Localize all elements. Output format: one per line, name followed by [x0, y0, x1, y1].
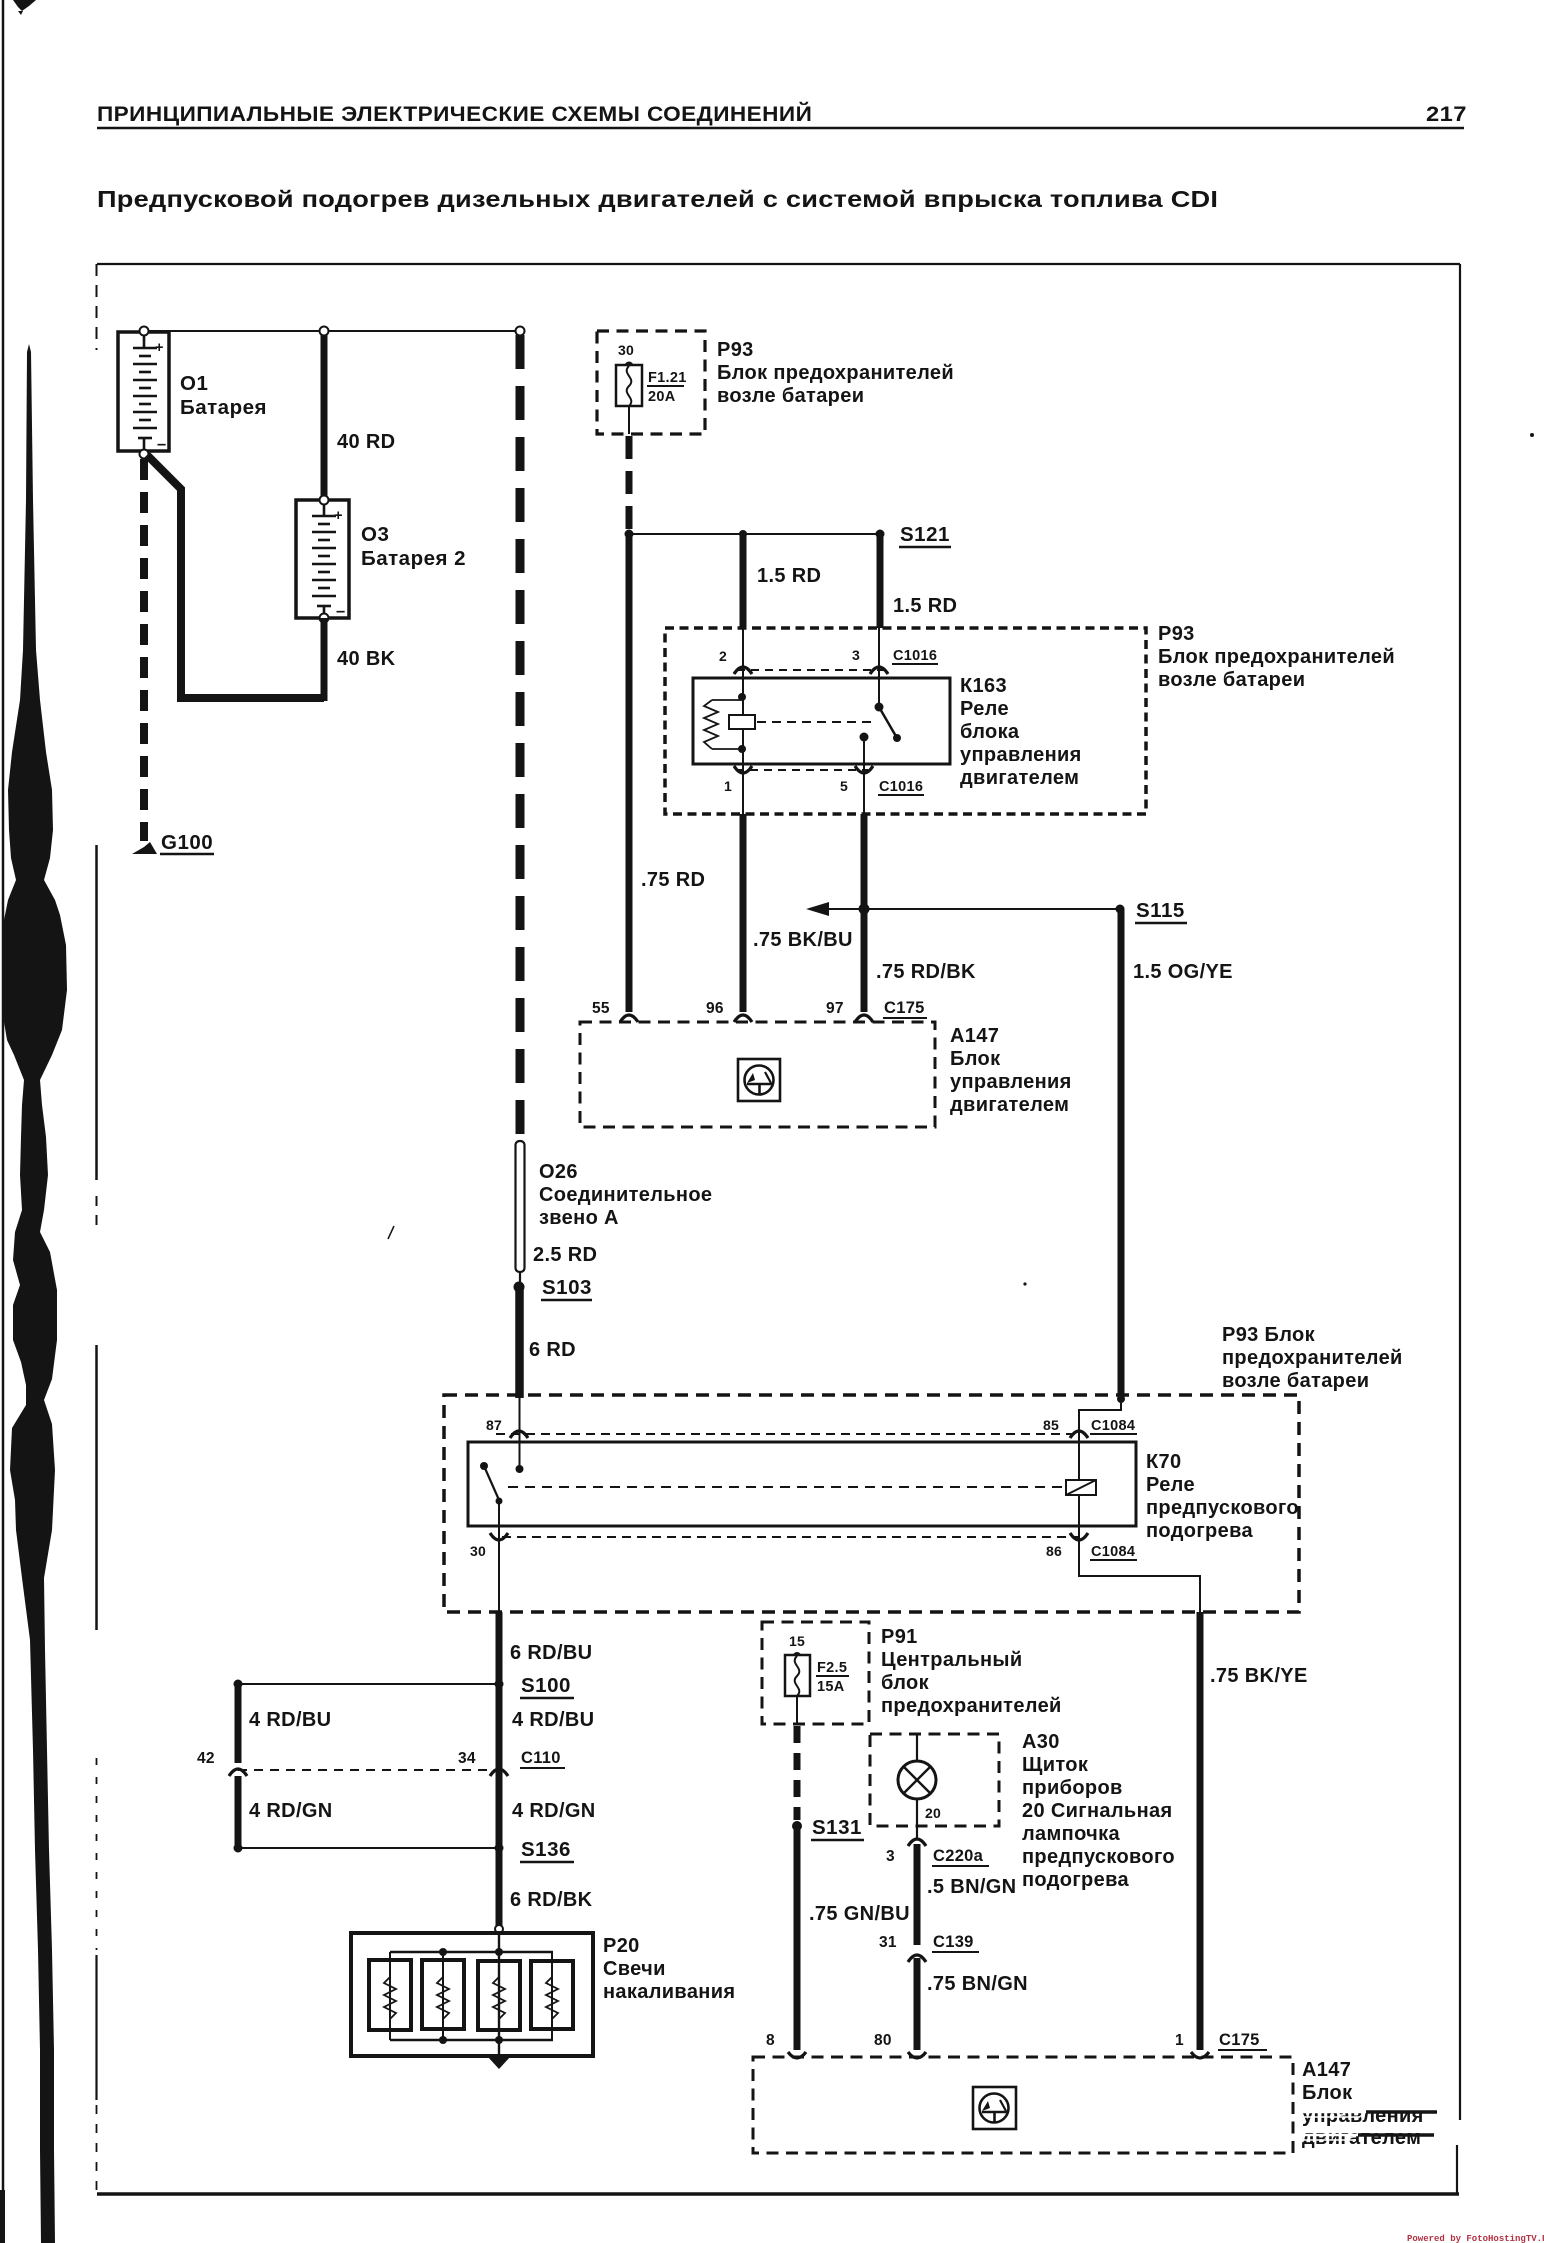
- svg-text:1.5 OG/YE: 1.5 OG/YE: [1133, 961, 1233, 983]
- svg-text:4 RD/GN: 4 RD/GN: [249, 1800, 333, 1822]
- svg-text:40 BK: 40 BK: [337, 648, 396, 670]
- svg-text:4 RD/GN: 4 RD/GN: [512, 1800, 596, 1822]
- svg-text:30: 30: [470, 1543, 486, 1559]
- svg-text:6 RD/BU: 6 RD/BU: [510, 1642, 592, 1664]
- svg-text:звено А: звено А: [539, 1207, 619, 1229]
- svg-text:C175: C175: [1219, 2031, 1260, 2049]
- svg-text:C1016: C1016: [879, 779, 923, 795]
- svg-text:Щиток: Щиток: [1022, 1754, 1089, 1776]
- svg-text:Р93 Блок: Р93 Блок: [1222, 1324, 1316, 1346]
- svg-text:.75 GN/BU: .75 GN/BU: [809, 1903, 910, 1925]
- svg-text:+: +: [155, 340, 164, 356]
- svg-text:15: 15: [789, 1633, 805, 1649]
- svg-text:подогрева: подогрева: [1022, 1869, 1129, 1891]
- svg-text:Центральный: Центральный: [881, 1649, 1023, 1671]
- svg-text:предохранителей: предохранителей: [881, 1695, 1062, 1717]
- svg-text:Реле: Реле: [1146, 1474, 1195, 1496]
- svg-text:Р20: Р20: [603, 1935, 640, 1957]
- svg-text:предпускового: предпускового: [1146, 1497, 1299, 1519]
- svg-text:.75 RD/BK: .75 RD/BK: [876, 961, 976, 983]
- svg-text:C1084: C1084: [1091, 1418, 1135, 1434]
- svg-text:А147: А147: [950, 1025, 999, 1047]
- svg-text:5: 5: [840, 778, 848, 794]
- svg-text:Блок: Блок: [950, 1048, 1001, 1070]
- svg-text:.5 BN/GN: .5 BN/GN: [927, 1876, 1016, 1898]
- svg-text:F1.21: F1.21: [648, 370, 687, 386]
- svg-text:О3: О3: [361, 523, 389, 546]
- svg-text:S103: S103: [542, 1276, 592, 1299]
- svg-text:1.5 RD: 1.5 RD: [757, 565, 821, 587]
- svg-text:блок: блок: [881, 1672, 930, 1694]
- svg-text:возле батареи: возле батареи: [1222, 1370, 1369, 1392]
- svg-text:1: 1: [1175, 2032, 1184, 2049]
- svg-text:34: 34: [458, 1750, 476, 1767]
- svg-text:C220a: C220a: [933, 1847, 984, 1865]
- svg-text:20A: 20A: [648, 389, 676, 405]
- svg-text:6 RD/BK: 6 RD/BK: [510, 1889, 593, 1911]
- svg-text:–: –: [336, 602, 345, 620]
- svg-text:C175: C175: [884, 999, 925, 1017]
- svg-text:.75 BK/YE: .75 BK/YE: [1210, 1665, 1308, 1687]
- svg-text:S115: S115: [1136, 899, 1185, 922]
- svg-text:3: 3: [886, 1848, 895, 1865]
- svg-text:1: 1: [724, 778, 732, 794]
- svg-text:31: 31: [879, 1934, 897, 1951]
- svg-text:217: 217: [1426, 102, 1467, 125]
- svg-text:86: 86: [1046, 1543, 1062, 1559]
- svg-text:Р93: Р93: [717, 339, 754, 361]
- svg-text:4 RD/BU: 4 RD/BU: [249, 1709, 331, 1731]
- svg-text:управления: управления: [1302, 2105, 1424, 2127]
- svg-text:85: 85: [1043, 1417, 1059, 1433]
- svg-text:Блок: Блок: [1302, 2082, 1353, 2104]
- svg-text:S121: S121: [900, 523, 950, 546]
- svg-text:предохранителей: предохранителей: [1222, 1347, 1403, 1369]
- svg-text:55: 55: [592, 1000, 610, 1017]
- svg-text:96: 96: [706, 1000, 724, 1017]
- svg-text:S136: S136: [521, 1838, 571, 1861]
- svg-text:Блок предохранителей: Блок предохранителей: [1158, 646, 1395, 668]
- svg-text:К163: К163: [960, 675, 1007, 697]
- svg-text:Батарея 2: Батарея 2: [361, 547, 466, 570]
- svg-text:1.5 RD: 1.5 RD: [893, 595, 957, 617]
- svg-text:87: 87: [486, 1417, 502, 1433]
- svg-text:30: 30: [618, 342, 634, 358]
- svg-text:Батарея: Батарея: [180, 396, 267, 419]
- svg-text:S100: S100: [521, 1674, 571, 1697]
- svg-text:F2.5: F2.5: [817, 1660, 847, 1676]
- svg-text:G100: G100: [161, 831, 213, 854]
- svg-text:Р93: Р93: [1158, 623, 1195, 645]
- svg-text:C110: C110: [521, 1749, 561, 1767]
- svg-text:+: +: [334, 508, 343, 524]
- svg-text:подогрева: подогрева: [1146, 1520, 1253, 1542]
- svg-text:блока: блока: [960, 721, 1020, 743]
- svg-text:О1: О1: [180, 372, 208, 395]
- svg-text:управления: управления: [960, 744, 1082, 766]
- svg-text:накаливания: накаливания: [603, 1981, 735, 2003]
- svg-text:Реле: Реле: [960, 698, 1009, 720]
- svg-text:Предпусковой подогрев дизельны: Предпусковой подогрев дизельных двигател…: [97, 187, 1218, 213]
- svg-text:C1016: C1016: [893, 648, 937, 664]
- svg-text:80: 80: [874, 2032, 892, 2049]
- svg-text:20: 20: [925, 1805, 941, 1821]
- svg-text:C139: C139: [933, 1933, 974, 1951]
- svg-text:.75 BK/BU: .75 BK/BU: [753, 929, 853, 951]
- svg-text:О26: О26: [539, 1161, 578, 1183]
- svg-text:двигателем: двигателем: [1302, 2127, 1421, 2149]
- svg-text:Соединительное: Соединительное: [539, 1184, 712, 1206]
- svg-text:предпускового: предпускового: [1022, 1846, 1175, 1868]
- svg-text:Р91: Р91: [881, 1626, 918, 1648]
- svg-text:А147: А147: [1302, 2059, 1351, 2081]
- svg-text:лампочка: лампочка: [1022, 1823, 1120, 1845]
- svg-text:3: 3: [852, 647, 860, 663]
- svg-text:ПРИНЦИПИАЛЬНЫЕ ЭЛЕКТРИЧЕСКИЕ С: ПРИНЦИПИАЛЬНЫЕ ЭЛЕКТРИЧЕСКИЕ СХЕМЫ СОЕДИ…: [97, 102, 812, 126]
- svg-text:Блок предохранителей: Блок предохранителей: [717, 362, 954, 384]
- svg-text:C1084: C1084: [1091, 1544, 1135, 1560]
- svg-text:97: 97: [826, 1000, 844, 1017]
- svg-text:двигателем: двигателем: [950, 1094, 1069, 1116]
- svg-text:2: 2: [719, 648, 727, 664]
- svg-text:.75 RD: .75 RD: [641, 869, 705, 891]
- svg-text:S131: S131: [812, 1816, 862, 1839]
- svg-text:приборов: приборов: [1022, 1777, 1123, 1799]
- svg-text:А30: А30: [1022, 1731, 1060, 1753]
- svg-text:Powered by FotoHostingTV.RU: Powered by FotoHostingTV.RU: [1407, 2234, 1544, 2243]
- svg-text:–: –: [157, 435, 166, 453]
- svg-text:42: 42: [197, 1750, 215, 1767]
- svg-text:15A: 15A: [817, 1679, 845, 1695]
- svg-text:управления: управления: [950, 1071, 1072, 1093]
- svg-text:2.5 RD: 2.5 RD: [533, 1244, 597, 1266]
- svg-text:.75 BN/GN: .75 BN/GN: [927, 1973, 1028, 1995]
- svg-text:40 RD: 40 RD: [337, 431, 395, 453]
- svg-text:4 RD/BU: 4 RD/BU: [512, 1709, 594, 1731]
- svg-text:8: 8: [766, 2032, 775, 2049]
- svg-text:6 RD: 6 RD: [529, 1339, 576, 1361]
- svg-text:двигателем: двигателем: [960, 767, 1079, 789]
- svg-text:возле батареи: возле батареи: [1158, 669, 1305, 691]
- svg-text:К70: К70: [1146, 1451, 1182, 1473]
- svg-text:20 Сигнальная: 20 Сигнальная: [1022, 1800, 1173, 1822]
- svg-text:возле батареи: возле батареи: [717, 385, 864, 407]
- svg-text:Свечи: Свечи: [603, 1958, 666, 1980]
